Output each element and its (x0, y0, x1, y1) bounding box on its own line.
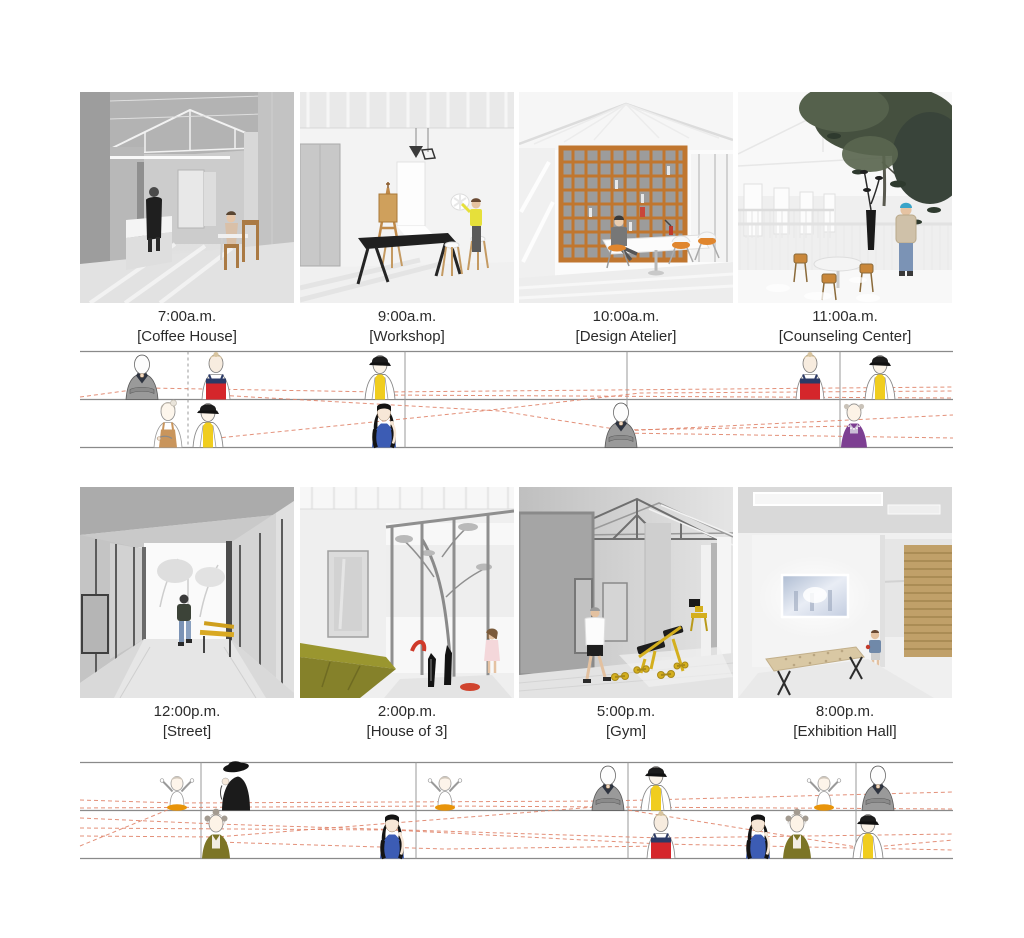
figure-barista-yellow-apron-cap (193, 404, 223, 448)
figure-elder-woman-olive-jacket (202, 809, 230, 859)
panel-place: [Exhibition Hall] (738, 722, 952, 742)
figure-barista-yellow-apron-cap (865, 356, 895, 400)
figure-barista-yellow-apron-cap (853, 815, 883, 859)
figure-person-black-hat-coat (221, 761, 251, 810)
render-gym-image (519, 487, 733, 698)
figure-barista-yellow-apron-cap (365, 356, 395, 400)
evening-timeline-strip (80, 762, 953, 859)
caption-exhibition-hall: 8:00p.m. [Exhibition Hall] (738, 702, 952, 742)
figure-barista-yellow-apron-cap (641, 767, 671, 811)
panel-street: 12:00p.m. [Street] (80, 487, 294, 742)
panel-time: 10:00a.m. (519, 307, 733, 327)
figure-child-red-sailor-top (202, 352, 230, 400)
panel-exhibition-hall: 8:00p.m. [Exhibition Hall] (738, 487, 952, 742)
render-exhibition-hall-image (738, 487, 952, 698)
panel-time: 11:00a.m. (738, 307, 952, 327)
panel-place: [Workshop] (300, 327, 514, 347)
figure-woman-long-hair-blue-top (372, 404, 396, 448)
caption-coffee-house: 7:00a.m. [Coffee House] (80, 307, 294, 347)
panel-coffee-house: 7:00a.m. [Coffee House] (80, 92, 294, 347)
caption-design-atelier: 10:00a.m. [Design Atelier] (519, 307, 733, 347)
panel-workshop: 9:00a.m. [Workshop] (300, 92, 514, 347)
panel-place: [Coffee House] (80, 327, 294, 347)
morning-timeline-strip (80, 351, 953, 448)
panel-time: 5:00p.m. (519, 702, 733, 722)
figure-man-in-gray-suit (862, 766, 894, 811)
figure-man-in-gray-suit (605, 403, 637, 448)
figure-child-red-sailor-top (647, 811, 675, 859)
panel-place: [Counseling Center] (738, 327, 952, 347)
render-coffee-house-image (80, 92, 294, 303)
panel-place: [House of 3] (300, 722, 514, 742)
figure-woman-long-hair-blue-top (746, 815, 770, 859)
figure-woman-long-hair-blue-top (380, 815, 404, 859)
panel-time: 2:00p.m. (300, 702, 514, 722)
figure-man-in-gray-suit (126, 355, 158, 400)
panel-gym: 5:00p.m. [Gym] (519, 487, 733, 742)
presentation-board: 7:00a.m. [Coffee House] (0, 0, 1024, 938)
caption-workshop: 9:00a.m. [Workshop] (300, 307, 514, 347)
figure-child-arms-raised-orange-skirt (807, 777, 841, 811)
panel-place: [Gym] (519, 722, 733, 742)
panel-place: [Design Atelier] (519, 327, 733, 347)
render-design-atelier-image (519, 92, 733, 303)
panel-time: 7:00a.m. (80, 307, 294, 327)
figure-elder-woman-olive-jacket (783, 809, 811, 859)
figure-man-in-gray-suit (592, 766, 624, 811)
caption-house-of-3: 2:00p.m. [House of 3] (300, 702, 514, 742)
panel-time: 12:00p.m. (80, 702, 294, 722)
caption-street: 12:00p.m. [Street] (80, 702, 294, 742)
figure-child-red-sailor-top (796, 352, 824, 400)
render-street-image (80, 487, 294, 698)
render-workshop-image (300, 92, 514, 303)
caption-gym: 5:00p.m. [Gym] (519, 702, 733, 742)
panel-design-atelier: 10:00a.m. [Design Atelier] (519, 92, 733, 347)
figure-child-arms-raised-orange-skirt (160, 777, 194, 811)
render-counseling-center-image (738, 92, 952, 303)
panel-house-of-3: 2:00p.m. [House of 3] (300, 487, 514, 742)
panel-counseling-center: 11:00a.m. [Counseling Center] (738, 92, 952, 347)
figure-elder-woman-purple-top (841, 403, 867, 448)
caption-counseling-center: 11:00a.m. [Counseling Center] (738, 307, 952, 347)
figure-woman-tan-apron (154, 400, 182, 448)
panel-time: 8:00p.m. (738, 702, 952, 722)
panel-time: 9:00a.m. (300, 307, 514, 327)
panel-place: [Street] (80, 722, 294, 742)
render-house-of-3-image (300, 487, 514, 698)
